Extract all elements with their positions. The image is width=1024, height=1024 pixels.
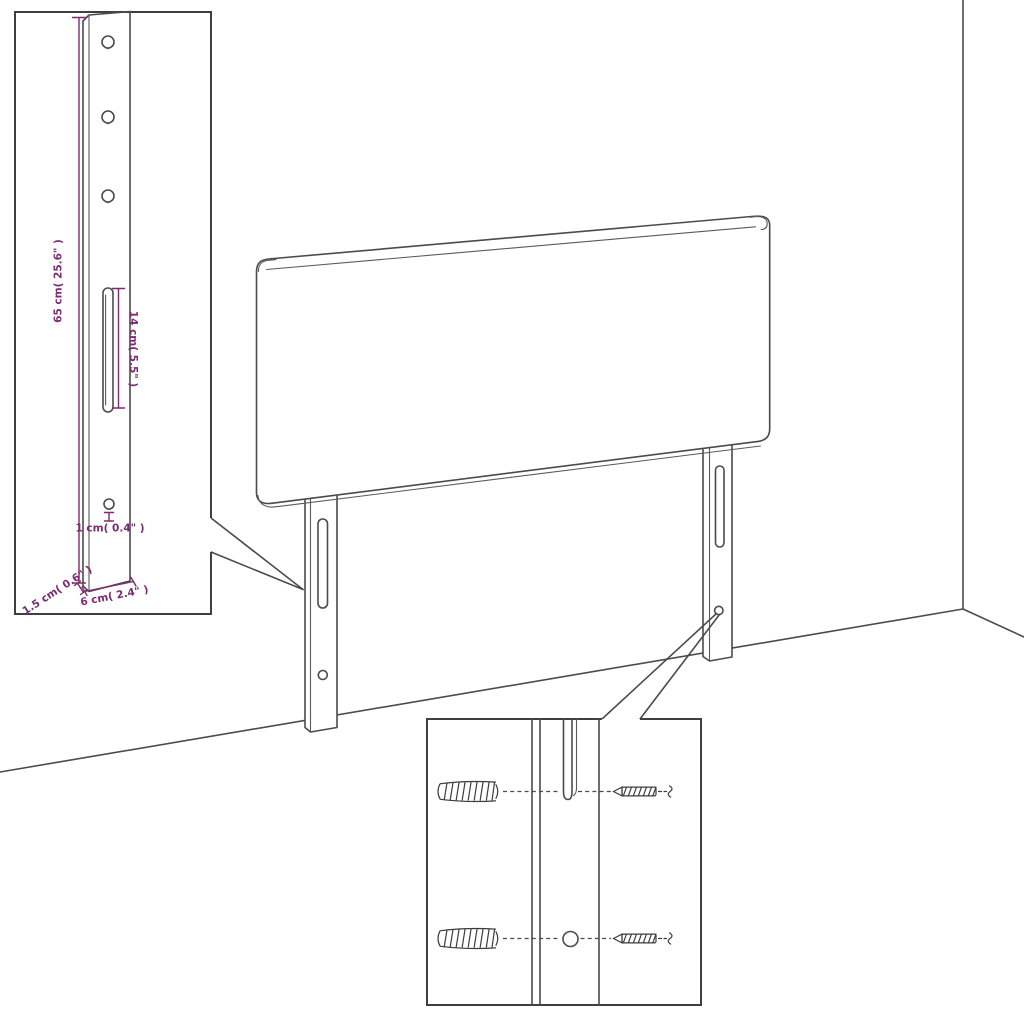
detail-inset-leg: 65 cm( 25.6" ) 14 cm( 5.5" ) 1 cm( 0.4" …	[15, 12, 211, 618]
floor-line-right	[963, 609, 1024, 637]
bottom-callout-leader-left	[602, 614, 717, 720]
detail-inset-hardware	[427, 719, 701, 1005]
right-leg	[703, 434, 732, 661]
left-callout-leader-bottom	[211, 552, 303, 590]
headboard-panel	[257, 216, 770, 507]
dimension-label-leg-height: 65 cm( 25.6" )	[53, 239, 65, 323]
callout-leaders	[211, 518, 720, 719]
left-leg	[305, 485, 337, 732]
left-callout-leader-top	[211, 518, 303, 590]
dimension-label-hole-diameter: 1 cm( 0.4" )	[75, 523, 144, 535]
dimension-label-slot-length: 14 cm( 5.5" )	[127, 311, 139, 387]
bottom-callout-leader-right	[640, 615, 720, 720]
diagram-canvas: 65 cm( 25.6" ) 14 cm( 5.5" ) 1 cm( 0.4" …	[0, 0, 1024, 1024]
